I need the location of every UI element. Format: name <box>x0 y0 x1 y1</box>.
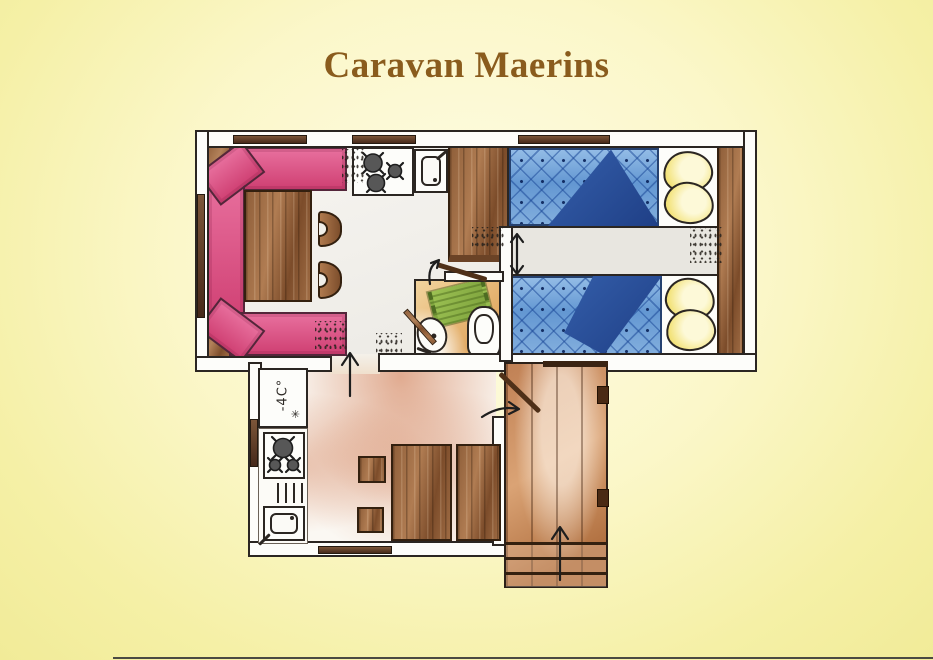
drain-icon <box>290 516 294 520</box>
pillow-icon <box>665 278 717 352</box>
drainer-icon <box>277 483 303 503</box>
terrace-door-arrow-icon <box>480 397 522 421</box>
page-title: Caravan Maerins <box>0 44 933 87</box>
bathroom-door-arrow-icon <box>424 257 442 285</box>
window <box>250 419 258 467</box>
aisle-slide-arrow-icon <box>507 231 527 277</box>
stipple-dots <box>342 149 366 183</box>
sink-lower <box>263 506 305 541</box>
entry-arrow-icon <box>339 349 361 399</box>
stool <box>358 456 386 483</box>
window <box>352 135 416 144</box>
stool <box>357 507 384 533</box>
dining-table-panel <box>391 444 452 541</box>
fridge: -4C° ✳ <box>258 368 308 428</box>
sink-basin <box>421 156 441 186</box>
wall <box>743 130 757 372</box>
fridge-label: -4C° <box>276 378 291 411</box>
drain-icon <box>433 178 437 182</box>
stipple-dots <box>376 333 402 353</box>
page-bottom-rule <box>113 657 933 659</box>
stipple-dots <box>690 227 722 263</box>
terrace-rail <box>543 361 608 367</box>
floorplan-scene: Caravan Maerins <box>0 0 933 660</box>
window <box>233 135 307 144</box>
hob-burners-icon <box>265 434 303 477</box>
bedroom-aisle-floor <box>506 228 720 276</box>
dining-table-panel <box>456 444 501 541</box>
pillow-icon <box>663 151 715 225</box>
terrace-arrow-icon <box>549 523 571 583</box>
dinette-table <box>244 190 312 302</box>
window <box>518 135 610 144</box>
stipple-dots <box>472 227 504 249</box>
window <box>318 546 392 554</box>
window <box>197 194 205 318</box>
sink-top <box>414 149 448 193</box>
frost-icon: ✳ <box>291 408 300 421</box>
terrace-cleat <box>597 386 609 404</box>
terrace-cleat <box>597 489 609 507</box>
hob-lower <box>263 432 305 479</box>
toilet-icon <box>467 306 501 358</box>
stipple-dots <box>315 321 347 349</box>
